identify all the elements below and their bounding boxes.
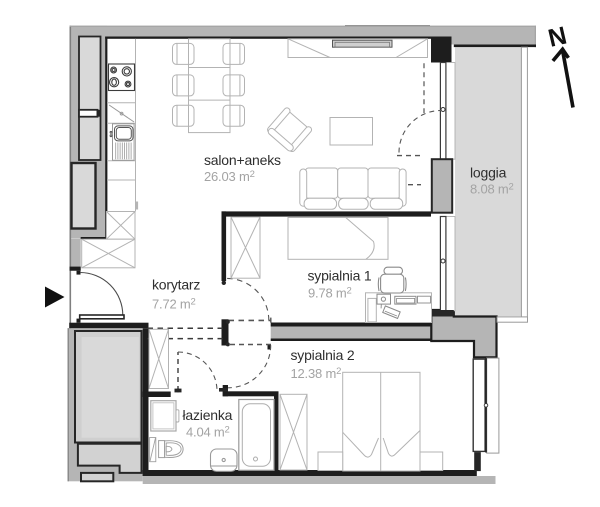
svg-text:salon+aneks: salon+aneks [204, 152, 281, 168]
svg-text:sypialnia 1: sypialnia 1 [308, 268, 372, 284]
svg-text:12.38 m2: 12.38 m2 [291, 366, 342, 381]
svg-text:26.03 m2: 26.03 m2 [204, 169, 255, 184]
svg-text:7.72 m2: 7.72 m2 [152, 296, 196, 311]
svg-text:korytarz: korytarz [152, 277, 200, 293]
svg-text:loggia: loggia [470, 165, 507, 181]
svg-text:4.04 m2: 4.04 m2 [186, 424, 230, 439]
svg-text:8.08 m2: 8.08 m2 [470, 181, 514, 196]
svg-text:9.78 m2: 9.78 m2 [308, 285, 352, 300]
svg-text:łazienka: łazienka [183, 407, 233, 423]
svg-text:sypialnia 2: sypialnia 2 [291, 347, 355, 363]
